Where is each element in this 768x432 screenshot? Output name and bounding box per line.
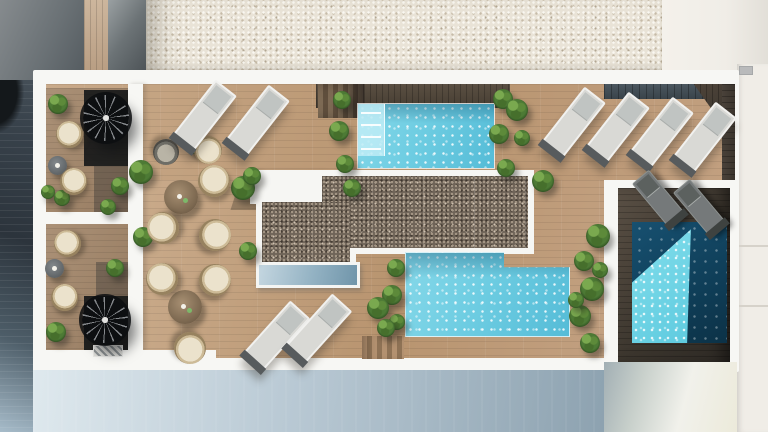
plant xyxy=(46,322,66,342)
wall-seam xyxy=(739,245,768,247)
pool-steps xyxy=(358,104,385,156)
wood-walkway-strip xyxy=(84,0,108,80)
plant xyxy=(106,259,124,277)
plant xyxy=(111,177,129,195)
spiral-staircase xyxy=(82,297,128,343)
swimming-pool-plunge-pool xyxy=(632,222,727,343)
spiral-staircase xyxy=(83,95,129,141)
plant xyxy=(532,170,554,192)
plant xyxy=(100,199,116,215)
plant xyxy=(506,99,528,121)
rooftop-terrace-render xyxy=(0,0,768,432)
plant xyxy=(514,130,530,146)
vent-grille xyxy=(93,345,123,357)
plant xyxy=(343,179,361,197)
plant xyxy=(336,155,354,173)
plant xyxy=(41,185,55,199)
pebble-patio-wing xyxy=(262,202,350,262)
skylight xyxy=(256,262,360,288)
divider-wall-horizontal xyxy=(33,212,143,224)
plant xyxy=(377,319,395,337)
plant xyxy=(592,262,608,278)
roof-vent xyxy=(739,66,753,75)
plant xyxy=(568,292,584,308)
plant xyxy=(367,297,389,319)
swimming-pool-top-pool xyxy=(358,104,494,168)
facade-bottom xyxy=(33,370,604,432)
plant xyxy=(580,333,600,353)
round-table xyxy=(45,259,64,278)
plant xyxy=(243,167,261,185)
wall-seam xyxy=(739,305,768,307)
stairs xyxy=(362,336,404,359)
plant xyxy=(569,305,591,327)
plant xyxy=(48,94,68,114)
gravel-roof xyxy=(146,0,662,74)
pool-sunlit-reflection xyxy=(632,222,727,343)
plant xyxy=(329,121,349,141)
concrete-bottom-right xyxy=(604,362,737,432)
plant xyxy=(489,124,509,144)
plant xyxy=(574,251,594,271)
plant xyxy=(333,91,351,109)
building-gap-shadow xyxy=(108,0,146,80)
plant xyxy=(129,160,153,184)
plant xyxy=(387,259,405,277)
plant xyxy=(586,224,610,248)
plant xyxy=(239,242,257,260)
round-table xyxy=(164,180,198,214)
plant xyxy=(497,159,515,177)
building-right-wall xyxy=(737,64,768,432)
round-table xyxy=(168,290,202,324)
